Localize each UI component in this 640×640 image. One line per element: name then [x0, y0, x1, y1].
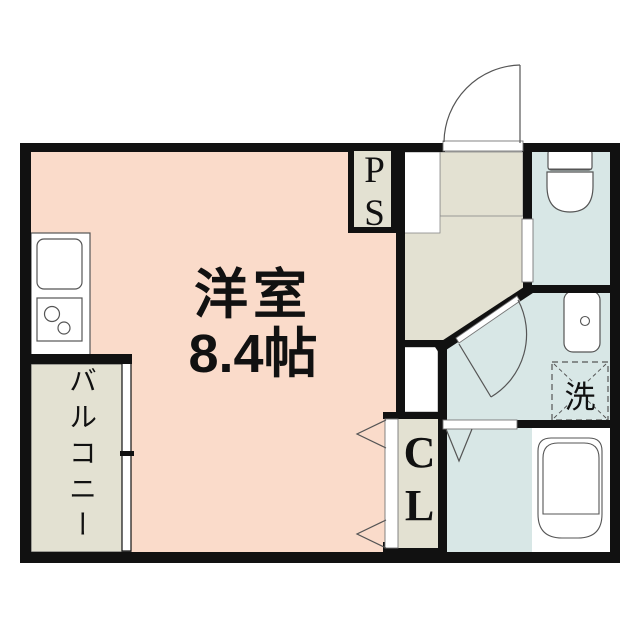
wall-right [610, 143, 620, 563]
wall-balcony-top [20, 354, 132, 364]
stove [37, 298, 82, 341]
wall-room-hall [396, 152, 405, 414]
closet-label: CL [394, 428, 445, 534]
stove-burner-icon [58, 322, 70, 334]
entry-genkan-area [440, 152, 523, 216]
toilet-bowl [547, 172, 593, 212]
toilet-tank [548, 150, 592, 170]
pipe-space-label: PS [353, 150, 396, 236]
toilet-door-opening [522, 219, 533, 282]
window-latch-mark [120, 451, 134, 456]
stove-burner-icon [45, 307, 60, 322]
wall-left [20, 143, 31, 563]
wall-bottom [20, 552, 620, 563]
main-room-size-label: 8.4帖 [148, 326, 358, 382]
bathroom-door-bar [443, 420, 517, 429]
bathtub-platform [532, 428, 610, 552]
balcony-label: バルコニー [60, 366, 100, 546]
kitchen-sink [37, 239, 82, 289]
wall-toilet-left-upper [523, 152, 532, 219]
bathroom-floor [447, 428, 532, 552]
wall-toilet-bottom [523, 285, 610, 293]
shoe-cabinet [402, 152, 440, 233]
vanity-sink [564, 291, 600, 352]
entrance-door-arc [444, 65, 520, 142]
floor-plan: 洋室 8.4帖 バルコニー PS CL 洗 [0, 0, 640, 640]
laundry-label: 洗 [552, 372, 608, 417]
entrance-threshold [443, 141, 523, 151]
main-room-label: 洋室 [148, 267, 358, 323]
balcony-sliding-window [122, 363, 131, 551]
dead-space [400, 347, 438, 412]
wall-top-right [522, 143, 620, 152]
